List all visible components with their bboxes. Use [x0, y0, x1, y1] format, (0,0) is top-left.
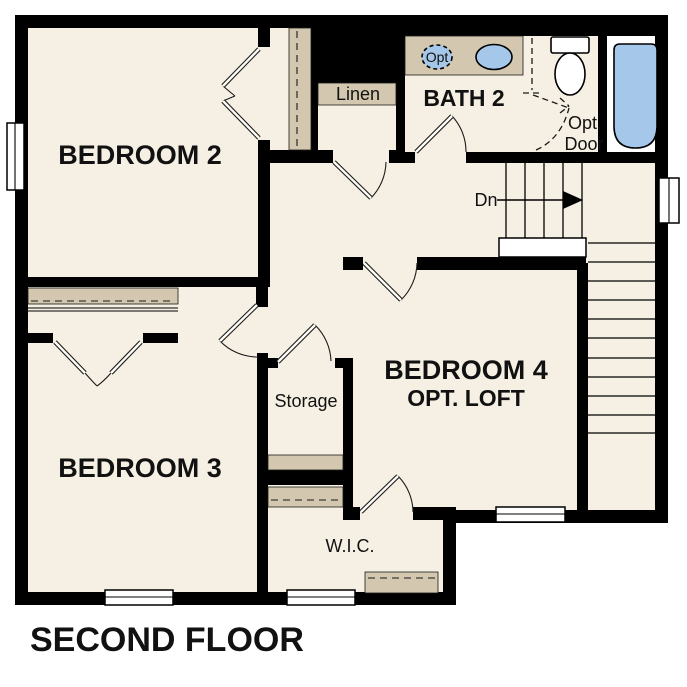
- page-title: SECOND FLOOR: [30, 621, 304, 659]
- bedroom2-closet-shelf: [289, 28, 311, 150]
- storage-shelf: [268, 455, 343, 470]
- floor-plan-drawing: BEDROOM 2 BEDROOM 3 BEDROOM 4 OPT. LOFT …: [0, 0, 687, 687]
- wic-window: [287, 590, 355, 605]
- bedroom3-closet-shelf: [28, 288, 178, 304]
- bath2-label: BATH 2: [423, 85, 504, 111]
- stair-landing: [499, 238, 586, 257]
- stairs-down-label: Dn: [474, 190, 497, 210]
- opt-door-label-1: Opt.: [568, 113, 602, 133]
- linen-label: Linen: [336, 84, 380, 104]
- bedroom3-window: [105, 590, 173, 605]
- opt-sink-label: Opt: [426, 49, 449, 65]
- stair-window: [659, 178, 679, 223]
- wic-shelf-left: [268, 487, 343, 507]
- bedroom2-window: [7, 123, 24, 190]
- bathtub: [614, 44, 657, 148]
- bedroom4-sublabel: OPT. LOFT: [407, 385, 525, 411]
- floor-plan: BEDROOM 2 BEDROOM 3 BEDROOM 4 OPT. LOFT …: [0, 0, 687, 687]
- bedroom3-label: BEDROOM 3: [58, 453, 222, 483]
- sink: [476, 45, 512, 70]
- bedroom2-label: BEDROOM 2: [58, 140, 222, 170]
- wic-shelf-right: [365, 572, 438, 593]
- bedroom4-label: BEDROOM 4: [384, 355, 548, 385]
- opt-door-label-2: Door: [564, 134, 603, 154]
- storage-label: Storage: [274, 391, 337, 411]
- bedroom4-window: [496, 507, 565, 522]
- wic-label: W.I.C.: [326, 536, 375, 556]
